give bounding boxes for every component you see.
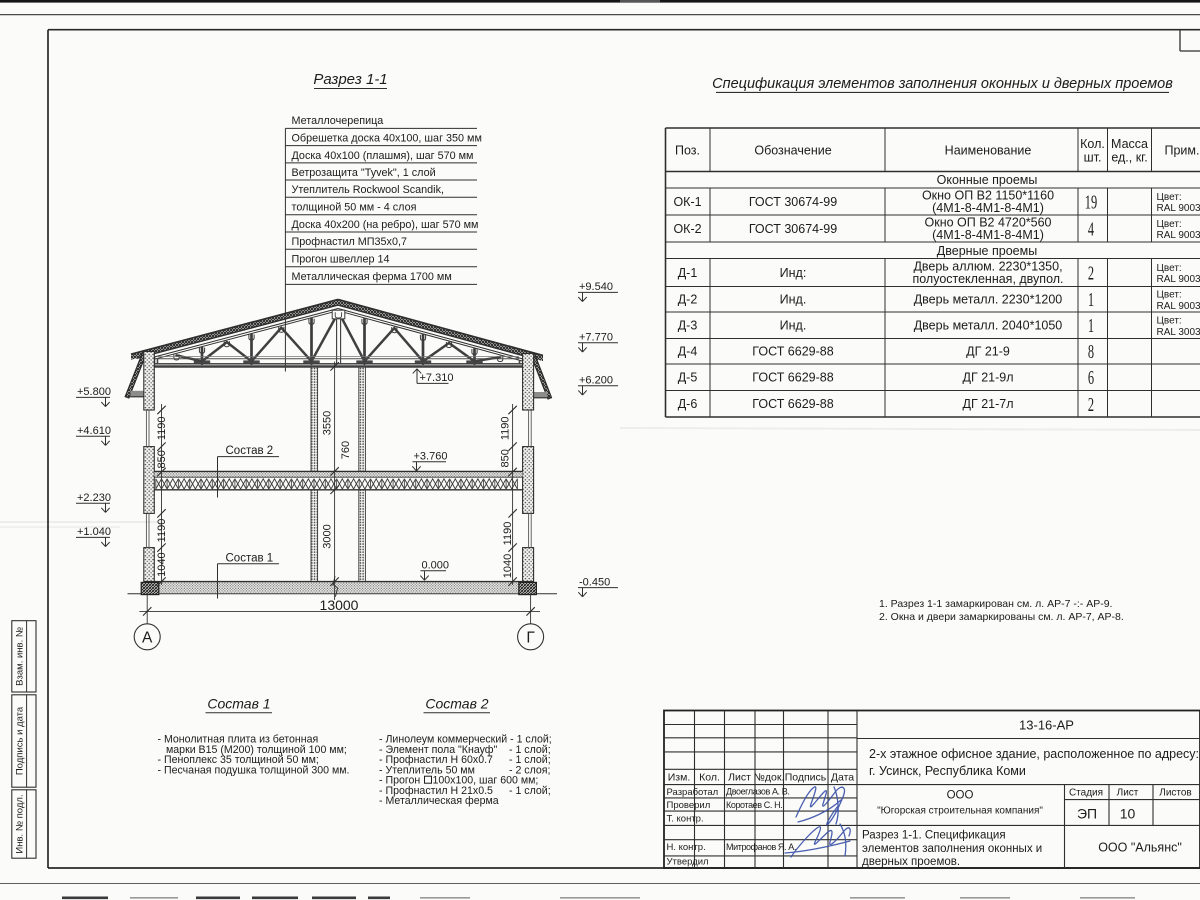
svg-text:Утеплитель Rockwool Scandik,: Утеплитель Rockwool Scandik, [292, 184, 444, 196]
svg-text:- Металлическая ферма: - Металлическая ферма [379, 795, 499, 807]
svg-text:ДГ 21-9л: ДГ 21-9л [962, 371, 1013, 385]
svg-text:ЭП: ЭП [1077, 806, 1097, 822]
svg-text:ОК-1: ОК-1 [673, 195, 701, 209]
svg-text:19: 19 [1085, 190, 1097, 213]
svg-text:4: 4 [1088, 217, 1095, 240]
svg-text:RAL 9003: RAL 9003 [1157, 203, 1200, 214]
svg-text:+4.610: +4.610 [77, 425, 111, 437]
svg-text:13000: 13000 [320, 597, 359, 613]
svg-text:ГОСТ 30674-99: ГОСТ 30674-99 [749, 222, 837, 236]
svg-text:толщиной 50 мм - 4 слоя: толщиной 50 мм - 4 слоя [292, 202, 417, 214]
svg-text:Митрофанов Я. А.: Митрофанов Я. А. [726, 842, 796, 852]
svg-text:2. Окна и двери замаркированы: 2. Окна и двери замаркированы см. л. АР-… [879, 611, 1124, 623]
svg-text:ООО: ООО [947, 790, 974, 802]
svg-text:полуостекленная, двупол.: полуостекленная, двупол. [912, 272, 1063, 286]
svg-text:Г: Г [526, 629, 535, 646]
svg-text:1040: 1040 [156, 552, 168, 576]
svg-text:Состав 1: Состав 1 [226, 552, 274, 564]
svg-text:дверных проемов.: дверных проемов. [862, 856, 960, 868]
svg-text:Листов: Листов [1159, 788, 1192, 799]
svg-text:0.000: 0.000 [422, 559, 450, 571]
svg-text:Оконные проемы: Оконные проемы [937, 173, 1038, 187]
svg-text:ГОСТ 6629-88: ГОСТ 6629-88 [752, 345, 833, 359]
svg-text:- Песчаная подушка толщиной 30: - Песчаная подушка толщиной 300 мм. [158, 764, 350, 776]
svg-text:Кол.: Кол. [1080, 137, 1105, 151]
svg-text:Разрез 1-1: Разрез 1-1 [313, 71, 387, 88]
svg-text:+6.200: +6.200 [579, 375, 613, 387]
svg-text:Цвет:: Цвет: [1157, 316, 1182, 327]
svg-text:шт.: шт. [1084, 150, 1102, 164]
svg-text:+2.230: +2.230 [77, 492, 111, 504]
svg-text:- 1 слой;: - 1 слой; [509, 785, 551, 797]
svg-text:Обозначение: Обозначение [754, 144, 831, 158]
svg-text:Доска 40х100 (плашмя), шаг 570: Доска 40х100 (плашмя), шаг 570 мм [292, 150, 474, 162]
svg-text:Прим.: Прим. [1165, 144, 1200, 158]
svg-text:1190: 1190 [156, 416, 168, 440]
svg-text:Металлическая ферма 1700 мм: Металлическая ферма 1700 мм [292, 271, 452, 283]
svg-text:Инд:: Инд: [780, 266, 807, 280]
svg-text:Инд.: Инд. [780, 319, 807, 333]
svg-text:100х100, шаг 600 мм;: 100х100, шаг 600 мм; [433, 775, 539, 787]
svg-text:+9.540: +9.540 [579, 281, 613, 293]
svg-text:- Прогон: - Прогон [379, 775, 420, 787]
svg-text:ед., кг.: ед., кг. [1111, 150, 1147, 164]
svg-text:Металлочерепица: Металлочерепица [292, 115, 384, 127]
svg-text:ГОСТ 6629-88: ГОСТ 6629-88 [752, 397, 833, 411]
svg-text:Д-2: Д-2 [678, 293, 698, 307]
svg-text:Спецификация элементов заполне: Спецификация элементов заполнения оконны… [712, 76, 1173, 92]
svg-text:Инд.: Инд. [780, 293, 807, 307]
svg-text:ДГ 21-7л: ДГ 21-7л [962, 397, 1013, 411]
svg-text:850: 850 [156, 450, 168, 468]
svg-text:ГОСТ 30674-99: ГОСТ 30674-99 [749, 195, 837, 209]
svg-text:Цвет:: Цвет: [1157, 290, 1182, 301]
svg-text:Наименование: Наименование [945, 144, 1032, 158]
svg-text:760: 760 [340, 441, 352, 459]
svg-text:Лист: Лист [1117, 788, 1139, 799]
svg-text:Н. контр.: Н. контр. [667, 842, 706, 853]
svg-text:Д-4: Д-4 [678, 345, 698, 359]
svg-text:850: 850 [499, 449, 511, 467]
svg-text:ГОСТ 6629-88: ГОСТ 6629-88 [752, 371, 833, 385]
svg-text:Разработал: Разработал [667, 787, 719, 798]
svg-text:Состав 1: Состав 1 [207, 696, 270, 712]
svg-text:Дверь металл. 2040*1050: Дверь металл. 2040*1050 [914, 319, 1063, 333]
svg-text:Доска 40х200 (на ребро), шаг 5: Доска 40х200 (на ребро), шаг 570 мм [292, 219, 479, 231]
svg-text:Поз.: Поз. [675, 144, 700, 158]
svg-text:ОК-2: ОК-2 [673, 222, 701, 236]
svg-text:(4М1-8-4М1-8-4М1): (4М1-8-4М1-8-4М1) [932, 201, 1044, 215]
svg-text:Утвердил: Утвердил [667, 856, 709, 867]
svg-text:Проверил: Проверил [667, 800, 711, 811]
svg-text:+7.770: +7.770 [579, 332, 613, 344]
svg-text:г. Усинск, Республика Коми: г. Усинск, Республика Коми [869, 764, 1026, 778]
svg-text:(4М1-8-4М1-8-4М1): (4М1-8-4М1-8-4М1) [932, 228, 1044, 242]
svg-text:Изм.: Изм. [668, 772, 691, 784]
svg-text:элементов заполнения оконных и: элементов заполнения оконных и [862, 843, 1042, 855]
svg-text:Инв. № подл.: Инв. № подл. [14, 794, 25, 853]
svg-text:Кол.: Кол. [699, 772, 720, 784]
svg-text:А: А [142, 629, 153, 646]
svg-text:+3.760: +3.760 [414, 450, 448, 462]
svg-text:2: 2 [1088, 261, 1094, 284]
svg-text:1. Разрез 1-1 замаркирован см.: 1. Разрез 1-1 замаркирован см. л. АР-7 -… [879, 598, 1112, 610]
svg-text:1190: 1190 [499, 416, 511, 440]
svg-text:Прогон швеллер 14: Прогон швеллер 14 [292, 254, 390, 266]
svg-text:Подпись: Подпись [785, 772, 827, 784]
svg-text:"Югорская строительная компани: "Югорская строительная компания" [877, 806, 1043, 817]
svg-text:Масса: Масса [1111, 137, 1148, 151]
svg-text:Ветрозащита "Tyvek", 1 слой: Ветрозащита "Tyvek", 1 слой [292, 167, 436, 179]
svg-text:Д-1: Д-1 [678, 266, 698, 280]
svg-text:+5.800: +5.800 [77, 386, 111, 398]
svg-text:Дверь металл. 2230*1200: Дверь металл. 2230*1200 [914, 293, 1063, 307]
svg-text:3000: 3000 [322, 524, 334, 548]
svg-text:1: 1 [1088, 288, 1094, 311]
svg-text:10: 10 [1120, 806, 1136, 822]
svg-text:Цвет:: Цвет: [1157, 192, 1182, 203]
svg-text:Подпись и дата: Подпись и дата [14, 706, 25, 775]
svg-text:№док.: №док. [754, 772, 785, 784]
svg-text:Д-5: Д-5 [678, 371, 698, 385]
svg-text:Т. контр.: Т. контр. [667, 814, 704, 825]
svg-text:Состав 2: Состав 2 [425, 696, 488, 712]
svg-text:3550: 3550 [322, 411, 334, 435]
svg-text:1: 1 [1088, 314, 1094, 337]
svg-text:RAL 9003: RAL 9003 [1157, 301, 1200, 312]
svg-text:RAL 9003: RAL 9003 [1157, 230, 1200, 241]
svg-text:Лист: Лист [728, 772, 751, 784]
svg-text:1190: 1190 [502, 522, 514, 546]
svg-text:6: 6 [1088, 366, 1094, 389]
svg-text:Обрешетка доска 40х100, шаг 35: Обрешетка доска 40х100, шаг 350 мм [292, 133, 482, 145]
svg-text:1040: 1040 [502, 554, 514, 578]
svg-text:-0.450: -0.450 [579, 576, 610, 588]
svg-text:2-х этажное офисное здание, ра: 2-х этажное офисное здание, расположенно… [869, 747, 1199, 761]
svg-text:Д-6: Д-6 [678, 397, 698, 411]
svg-text:RAL 3003: RAL 3003 [1157, 327, 1200, 338]
svg-text:Состав 2: Состав 2 [226, 445, 274, 457]
svg-text:Цвет:: Цвет: [1157, 219, 1182, 230]
svg-text:+1.040: +1.040 [77, 526, 111, 538]
svg-text:2: 2 [1088, 393, 1094, 416]
svg-text:Стадия: Стадия [1069, 788, 1103, 799]
svg-text:RAL 9003: RAL 9003 [1157, 274, 1200, 285]
svg-text:ООО "Альянс": ООО "Альянс" [1098, 841, 1182, 855]
svg-text:Дата: Дата [831, 772, 854, 784]
svg-text:Профнастил МП35х0,7: Профнастил МП35х0,7 [292, 236, 407, 248]
svg-text:+7.310: +7.310 [420, 372, 454, 384]
svg-text:Коротаев С. Н.: Коротаев С. Н. [726, 800, 782, 810]
svg-text:Дверные проемы: Дверные проемы [937, 244, 1037, 258]
svg-text:Взам. инв. №: Взам. инв. № [14, 627, 25, 686]
svg-text:8: 8 [1088, 340, 1094, 363]
svg-text:13-16-АР: 13-16-АР [1019, 717, 1074, 732]
svg-text:Цвет:: Цвет: [1157, 263, 1182, 274]
svg-text:Двоеглазов А. В.: Двоеглазов А. В. [726, 786, 789, 796]
svg-text:Д-3: Д-3 [678, 319, 698, 333]
svg-text:ДГ 21-9: ДГ 21-9 [966, 345, 1010, 359]
svg-text:Разрез 1-1. Спецификация: Разрез 1-1. Спецификация [862, 830, 1006, 842]
